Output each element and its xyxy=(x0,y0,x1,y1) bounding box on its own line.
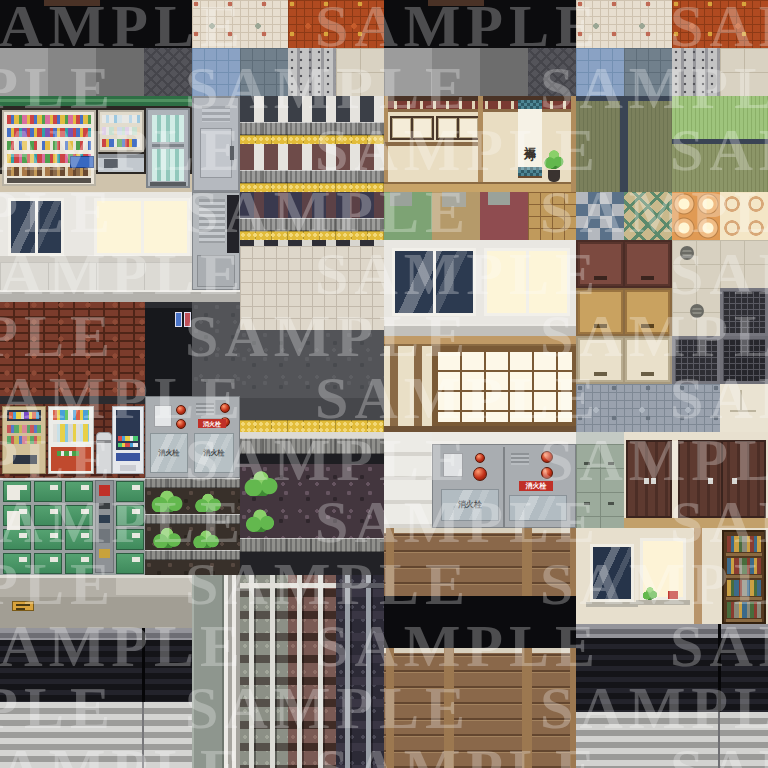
glass-sheen xyxy=(195,434,233,472)
hydrant-vents xyxy=(196,403,214,415)
locker-doors xyxy=(116,505,144,526)
vm-shelf xyxy=(53,424,89,442)
white-tile-wall xyxy=(240,246,384,330)
planter-bush xyxy=(191,530,221,548)
fence-post xyxy=(444,648,454,768)
glass-sheen xyxy=(151,434,187,472)
lattice-circle-tile xyxy=(720,192,768,240)
fridge-base xyxy=(150,182,186,186)
vending-machine-beige xyxy=(2,406,46,474)
product-row xyxy=(7,128,91,137)
slate-tile-right xyxy=(624,48,672,96)
ac-cabinet xyxy=(192,192,240,290)
japanese-room-wall: 福寿 xyxy=(384,96,576,192)
office-building xyxy=(0,192,240,302)
closet-door-wall xyxy=(624,432,768,528)
cabinet-top xyxy=(576,432,624,444)
floor-drain xyxy=(680,246,694,260)
shutter-slats xyxy=(0,640,192,702)
shelf-lip xyxy=(726,597,762,600)
fence-post xyxy=(386,528,394,596)
cupboard-panel xyxy=(459,118,478,138)
locker-doors xyxy=(34,481,62,502)
alarm-white-box xyxy=(443,453,463,477)
cabinet-handle xyxy=(584,462,590,465)
register xyxy=(104,159,118,168)
white-stack-column xyxy=(384,432,432,528)
vm-cans xyxy=(118,443,138,447)
locker-doors xyxy=(34,505,62,526)
cabinet-handle xyxy=(608,462,614,465)
dark-window-pair xyxy=(392,248,476,316)
ledge-lip xyxy=(0,290,240,292)
door-handle-slot xyxy=(641,372,654,376)
mosaic-cream-right xyxy=(576,0,672,48)
striped-shutter xyxy=(576,712,768,768)
tactile-strip xyxy=(240,420,384,432)
unit-divider xyxy=(503,447,505,527)
wood-floor-strip xyxy=(384,182,576,192)
ac-grille xyxy=(199,199,225,243)
beige-tile-right xyxy=(720,48,768,96)
door-handle xyxy=(651,478,656,484)
restroom-entry xyxy=(145,302,192,396)
vm-red-band xyxy=(51,447,91,471)
cupboard-door xyxy=(625,338,670,382)
striped-shutter xyxy=(0,702,192,768)
planter-soil xyxy=(145,560,240,575)
hydrant-red-tag: 消火栓 xyxy=(198,419,226,428)
rail-cap xyxy=(240,583,288,588)
fence-post xyxy=(570,528,576,596)
tatami-olive xyxy=(576,96,672,192)
ac-dark-column xyxy=(227,195,239,253)
locker-doors xyxy=(116,529,144,550)
pillars-gray xyxy=(240,96,384,122)
checker-floor-tile xyxy=(576,192,624,240)
asphalt-road xyxy=(192,302,240,398)
rail-cap xyxy=(288,583,336,588)
closet-door-wide xyxy=(678,440,766,518)
fire-hydrant-cabinet: 消火栓消火栓消火栓 xyxy=(145,396,240,478)
planter-bush xyxy=(193,493,223,512)
small-yellow-sign xyxy=(12,601,34,611)
shopping-basket xyxy=(70,156,94,168)
gray-tile-3 xyxy=(480,48,528,96)
alarm-lamp xyxy=(176,405,186,415)
platform-ledge xyxy=(240,170,384,183)
locker-control-column xyxy=(95,480,114,573)
vm-display xyxy=(7,410,41,421)
fridge-glass-bottom xyxy=(152,149,184,181)
scroll-header xyxy=(518,100,542,109)
locker-doors xyxy=(34,529,62,550)
shelf-lip xyxy=(726,553,762,556)
window-mullion xyxy=(141,201,144,253)
tatami-olive-2 xyxy=(672,144,768,192)
fence-post xyxy=(522,528,532,596)
sign-text-dash xyxy=(16,604,30,606)
blue-tile-right xyxy=(576,48,624,96)
door-handle-slot xyxy=(641,276,654,280)
edge-shadow xyxy=(240,552,384,575)
interior-wall-windows xyxy=(576,528,768,624)
locker-doors xyxy=(65,505,93,526)
vm-buttons xyxy=(7,436,41,444)
bottle-row xyxy=(102,115,140,123)
cupboard-door xyxy=(578,290,623,334)
concrete-ledge xyxy=(0,290,240,302)
rail-track-brown xyxy=(288,575,336,768)
door-handle xyxy=(644,478,649,484)
plaster-crack xyxy=(730,410,756,412)
concrete-ledge xyxy=(384,324,576,336)
shelf-lip xyxy=(726,575,762,578)
plaster-patch xyxy=(488,192,510,205)
glow-square-tile xyxy=(672,192,720,240)
trash-bin xyxy=(96,432,112,474)
shutter-seam xyxy=(718,624,721,712)
planter-soil xyxy=(145,524,240,550)
scroll-rod xyxy=(518,176,542,178)
mosaic-red-right xyxy=(672,0,768,48)
vent-tile-left xyxy=(288,48,336,96)
shutter-header xyxy=(576,624,768,638)
scroll-footer xyxy=(518,167,542,176)
cupboard-door xyxy=(578,242,623,286)
control-slot xyxy=(99,503,110,509)
floor-drain xyxy=(690,304,704,318)
top-beam xyxy=(384,336,576,346)
beige-floor-drain xyxy=(672,240,768,288)
vm-slot xyxy=(120,465,136,471)
door-handle xyxy=(732,478,737,484)
cracked-plaster xyxy=(720,384,768,432)
locker-doors xyxy=(65,553,93,574)
locker-doors xyxy=(3,529,31,550)
door-frame-post xyxy=(694,528,702,624)
tatami-seam xyxy=(620,96,628,192)
trackside-bush xyxy=(244,508,276,532)
cabinet-handle xyxy=(608,502,614,505)
locker-top-edge xyxy=(0,478,145,480)
fridge-glass-top xyxy=(152,115,184,142)
cupboard-panel xyxy=(413,118,432,138)
vm-green-buttons xyxy=(57,451,79,456)
fridge-divider xyxy=(152,144,184,147)
diamond-floor-tile xyxy=(624,192,672,240)
cupboard-door xyxy=(578,338,623,382)
plaster-patch xyxy=(442,192,466,207)
brick-wall xyxy=(0,302,145,396)
door-handle-slot xyxy=(594,324,607,328)
alarm-lamp xyxy=(541,451,553,463)
drink-fridge xyxy=(146,108,190,188)
door-vents xyxy=(202,106,230,122)
tactile-strip xyxy=(240,135,384,144)
beige-tile-left xyxy=(336,48,384,96)
store-counter xyxy=(98,154,144,172)
control-coin-plate xyxy=(99,549,110,558)
glass-sheen xyxy=(442,490,498,520)
planter-block-band xyxy=(145,514,240,524)
platform-ledge xyxy=(240,218,384,231)
alarm-button xyxy=(473,467,487,481)
scroll-kanji: 福寿 xyxy=(518,109,542,167)
mosaic-cream-left xyxy=(192,0,288,48)
planter-block-band xyxy=(145,550,240,560)
gray-green-column xyxy=(192,575,224,768)
tatami-green xyxy=(672,96,768,144)
vm-display xyxy=(53,410,89,420)
gray-tile-3 xyxy=(96,48,144,96)
gravel-bed xyxy=(240,464,384,538)
platform-side xyxy=(240,438,384,454)
floor-edge-line xyxy=(384,182,576,184)
door-handle xyxy=(230,146,234,160)
wood-fence-bottom xyxy=(384,648,576,768)
counter-top xyxy=(98,154,144,158)
locker-doors xyxy=(3,553,31,574)
lit-window xyxy=(94,198,190,256)
control-red-sign xyxy=(99,485,110,496)
hydrant-red-tag: 消火栓 xyxy=(519,481,553,491)
glass-sheen xyxy=(510,496,566,520)
locker-doors xyxy=(34,553,62,574)
cabinet-handle xyxy=(584,502,590,505)
restroom-sign-female xyxy=(184,312,191,327)
control-screen xyxy=(99,515,110,523)
platform-pillar-wall xyxy=(240,96,384,246)
cupboard-brown xyxy=(576,240,672,288)
vending-machine-navy xyxy=(112,406,144,474)
potted-plant xyxy=(542,148,566,184)
ledge-lip xyxy=(384,324,576,326)
snack-row xyxy=(7,167,91,176)
cupboard-panel xyxy=(438,118,457,138)
awning-stripe xyxy=(0,99,192,102)
slate-tile-left xyxy=(240,48,288,96)
pack-row xyxy=(102,139,140,147)
dark-shutter xyxy=(0,628,192,702)
rail-track-dark xyxy=(336,575,384,768)
kiosk-store xyxy=(0,96,192,192)
shutter-seam xyxy=(718,712,720,768)
edge-shadow xyxy=(240,454,384,464)
bin-lid-line xyxy=(97,440,112,443)
platform-side xyxy=(240,538,384,552)
column-highlight xyxy=(192,575,194,768)
metal-grate xyxy=(720,336,768,384)
alarm-lamp xyxy=(475,453,485,463)
steel-door xyxy=(192,96,240,192)
gray-green-cabinet xyxy=(576,432,624,528)
wall-post xyxy=(390,346,398,426)
window-sheen xyxy=(593,547,631,599)
shoji-screen xyxy=(432,346,576,426)
parquet-tile xyxy=(528,192,576,240)
closet-door-narrow xyxy=(626,440,672,518)
pillars-maroon xyxy=(240,144,384,170)
door-panel xyxy=(200,128,232,178)
tileset-sheet: 消火栓消火栓消火栓福寿消火栓消火栓 SAMPLE SAMPLE SAMPLE S… xyxy=(0,0,768,768)
book-row xyxy=(727,602,761,618)
asphalt-road xyxy=(240,330,384,398)
window-sill xyxy=(636,600,690,605)
fence-post xyxy=(386,648,394,768)
wood-fence-top xyxy=(384,528,576,596)
store-shelf-mid xyxy=(98,110,144,152)
street-planter xyxy=(145,478,240,575)
cupboard-group xyxy=(390,116,434,140)
planter-bush xyxy=(149,490,185,512)
hydrant-vents xyxy=(511,453,529,465)
shelf-lip xyxy=(726,619,762,622)
shutter-header xyxy=(0,628,192,640)
product-row xyxy=(7,115,91,124)
striped-column xyxy=(224,575,240,768)
vending-machine-white xyxy=(48,406,94,474)
gray-tile-1 xyxy=(0,48,48,96)
black-strip-left xyxy=(0,0,192,48)
window-sheen xyxy=(395,251,473,313)
door-handle-slot xyxy=(641,324,654,328)
alarm-lamp xyxy=(220,403,230,413)
fence-cap xyxy=(384,528,576,533)
planter-soil xyxy=(145,488,240,514)
fence-post xyxy=(522,648,532,768)
cupboard-panel xyxy=(392,118,411,138)
alarm-button xyxy=(541,467,553,479)
baseboard xyxy=(624,518,768,528)
vending-row: 消火栓消火栓消火栓 xyxy=(0,396,240,478)
vm-flap xyxy=(13,455,37,464)
sign-text-dash xyxy=(16,608,25,610)
tactile-strip xyxy=(240,183,384,192)
bottle-row xyxy=(102,127,140,135)
planter-bush xyxy=(151,527,183,548)
platform-ledge xyxy=(240,122,384,135)
plaster-patch xyxy=(390,192,412,206)
pillars-indigo xyxy=(240,192,384,218)
alarm-button xyxy=(176,419,186,429)
wall-post xyxy=(414,346,422,426)
product-row xyxy=(7,141,91,150)
rail-track-gray xyxy=(240,575,288,768)
door-center-seam xyxy=(721,442,723,518)
bookshelf xyxy=(722,530,766,624)
shutter-slats xyxy=(576,638,768,712)
mosaic-red-left xyxy=(288,0,384,48)
dark-window xyxy=(8,198,64,256)
fence-cap xyxy=(384,648,576,653)
alarm-white-box xyxy=(154,405,172,427)
roof-tile-nub xyxy=(44,0,100,6)
door-handle-slot xyxy=(594,276,607,280)
wall-maroon-weathered xyxy=(480,192,528,240)
cupboard-tan xyxy=(576,288,672,336)
shoji-wall xyxy=(384,336,576,432)
platform-edge xyxy=(240,398,384,575)
vm-buttons xyxy=(7,425,41,433)
sill-red-box xyxy=(668,591,678,599)
rail-cap xyxy=(336,583,384,588)
beam xyxy=(384,142,482,146)
plant-bush xyxy=(544,148,564,170)
shutter-seam xyxy=(142,628,145,702)
sill-plant xyxy=(642,586,658,600)
gray-mosaic-wall xyxy=(576,384,720,432)
blue-tile-left xyxy=(192,48,240,96)
locker-doors xyxy=(65,529,93,550)
tactile-strip xyxy=(240,231,384,240)
book-row xyxy=(727,536,761,552)
door-handle xyxy=(708,478,713,484)
window-mullion xyxy=(526,251,529,313)
black-strip-right xyxy=(384,0,576,48)
store-shelf-left xyxy=(2,110,96,186)
locker-doors xyxy=(116,481,144,502)
gray-tile-1 xyxy=(384,48,432,96)
book-row xyxy=(727,580,761,596)
planter-block-band xyxy=(145,478,240,488)
window-sill xyxy=(586,602,638,607)
hatch-tile-left xyxy=(144,48,192,96)
vm-base xyxy=(116,453,140,461)
hydrant-glass: 消火栓 xyxy=(194,433,234,473)
ac-box xyxy=(197,255,235,287)
vm-items xyxy=(9,412,39,419)
shutter-seam xyxy=(142,702,144,768)
store-awning xyxy=(0,96,192,106)
entry-lintel xyxy=(145,302,192,308)
gray-tile-2 xyxy=(48,48,96,96)
small-dark-window xyxy=(590,544,634,602)
book-row xyxy=(727,558,761,574)
cabinet-doors xyxy=(576,444,624,528)
cupboard-door xyxy=(625,290,670,334)
wall-tan-weathered xyxy=(432,192,480,240)
metal-grate xyxy=(672,336,720,384)
control-panel xyxy=(99,529,110,543)
window-wall-right xyxy=(384,240,576,336)
cabinet-body: 消火栓消火栓 xyxy=(432,444,576,528)
cupboard-door xyxy=(625,242,670,286)
window-sheen xyxy=(11,201,61,253)
vm-display xyxy=(116,410,140,450)
dark-shutter xyxy=(576,624,768,712)
coin-lockers xyxy=(0,478,145,575)
gray-tile-2 xyxy=(432,48,480,96)
locker-poster xyxy=(7,511,20,530)
hydrant-glass: 消火栓 xyxy=(441,489,499,521)
locker-poster xyxy=(7,485,20,500)
restroom-sign-male xyxy=(175,312,182,327)
lower-wall xyxy=(0,262,192,290)
fire-hydrant-cabinet-right: 消火栓消火栓 xyxy=(432,432,576,528)
hanging-scroll: 福寿 xyxy=(518,100,542,178)
locker-doors xyxy=(116,553,144,574)
shelf-base xyxy=(7,178,91,183)
metal-grate xyxy=(720,288,768,336)
plant-pot xyxy=(548,170,560,182)
door-handle-slot xyxy=(594,372,607,376)
roof-tile-nub xyxy=(428,0,484,6)
hydrant-glass: 消火栓 xyxy=(150,433,188,473)
cupboard-group xyxy=(436,116,480,140)
void-gap xyxy=(384,596,576,648)
cupboard-cream xyxy=(576,336,672,384)
